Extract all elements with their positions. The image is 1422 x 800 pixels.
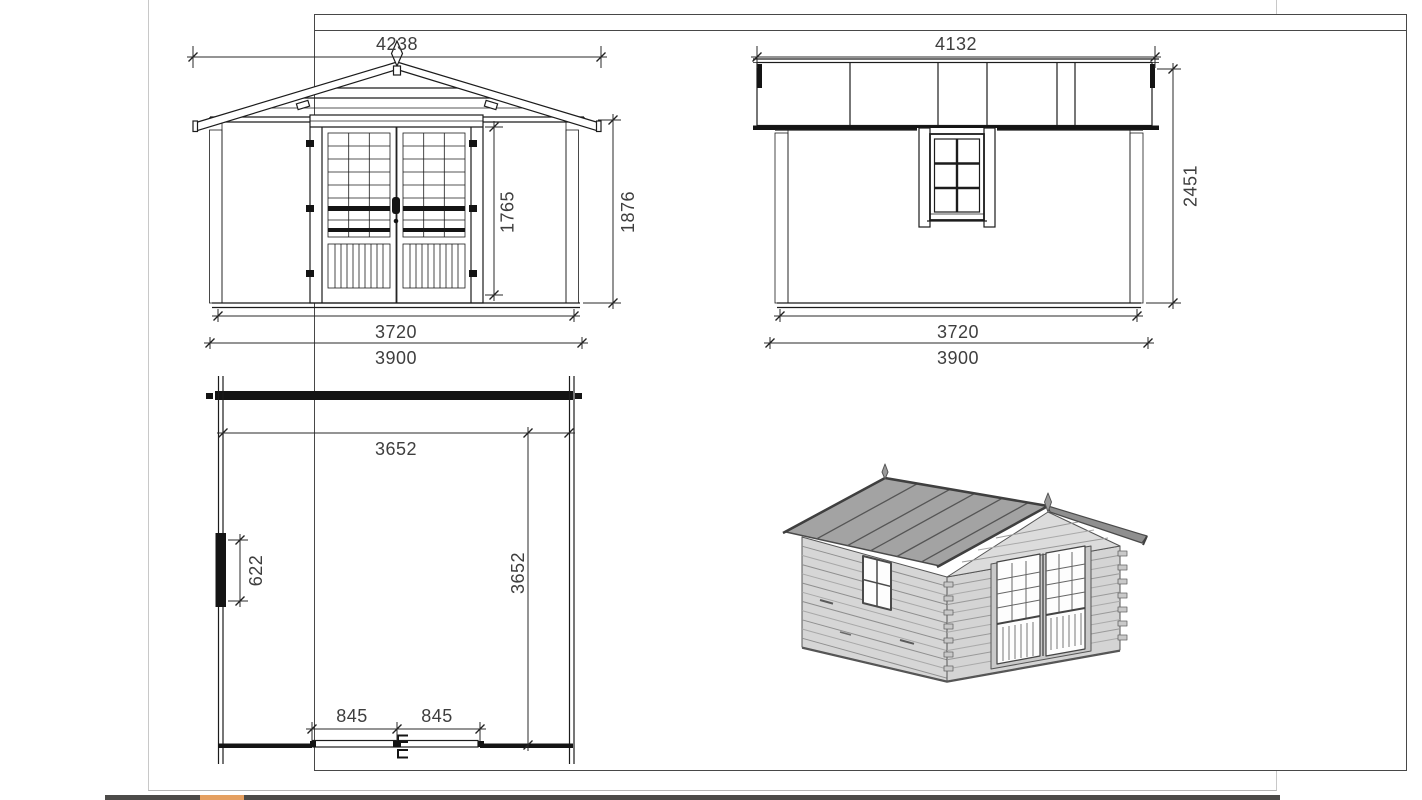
taskbar-accent-icon[interactable] bbox=[200, 795, 244, 800]
taskbar[interactable] bbox=[105, 795, 1280, 800]
desktop: 4238 1765 1876 3720 bbox=[0, 0, 1422, 800]
document-page bbox=[148, 0, 1277, 791]
title-strip bbox=[315, 15, 1406, 31]
drawing-frame bbox=[314, 14, 1407, 771]
